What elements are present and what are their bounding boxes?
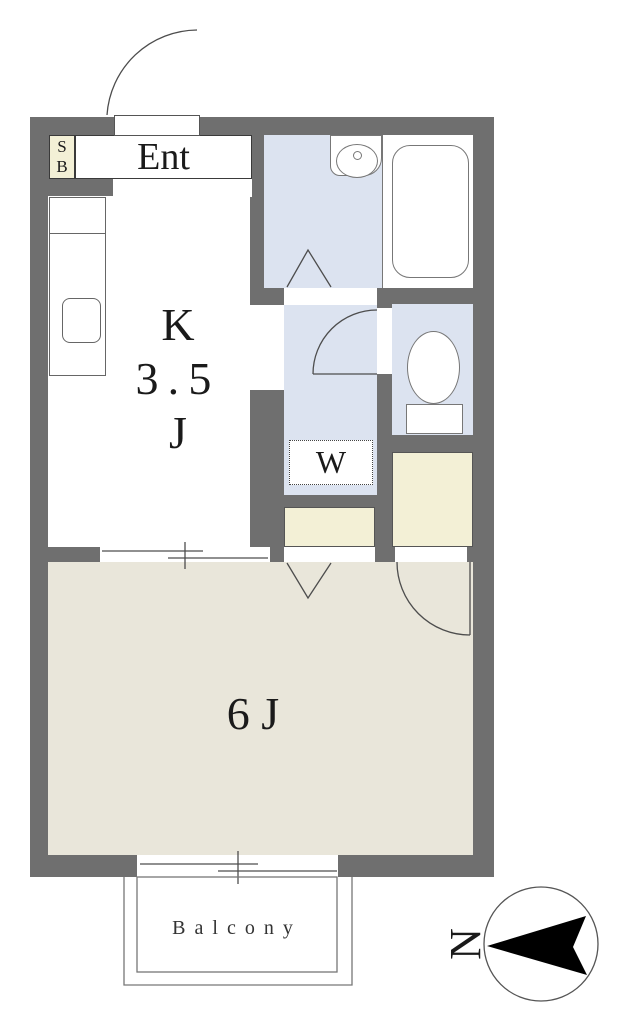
kitchen-label: K 3.5 J	[108, 294, 248, 464]
entrance-label: Ent	[75, 135, 252, 179]
north-label: N	[441, 920, 489, 968]
shoe-box-label-s: S	[57, 137, 66, 157]
closet-folding-door	[287, 563, 331, 598]
entrance-door-arc	[107, 30, 197, 115]
shoe-box-label-b: B	[56, 157, 67, 177]
toilet-door-arc	[313, 310, 377, 374]
room-door-arc	[397, 562, 470, 635]
balcony-label: Balcony	[132, 908, 342, 948]
kitchen-sliding-door-symbol	[102, 542, 268, 569]
kitchen-label-j: J	[169, 406, 187, 460]
balcony-sliding-window-symbol	[140, 851, 337, 884]
room-6j-label: 6 J	[48, 684, 458, 742]
washer-label: W	[289, 440, 373, 485]
kitchen-label-k: K	[161, 298, 194, 352]
compass	[484, 887, 598, 1001]
kitchen-label-size: 3.5	[135, 352, 220, 406]
floor-plan: S B Ent K 3.5 J W 6 J Balcony N	[0, 0, 624, 1024]
bathroom-folding-door	[287, 250, 331, 287]
shoe-box-label: S B	[49, 135, 75, 179]
